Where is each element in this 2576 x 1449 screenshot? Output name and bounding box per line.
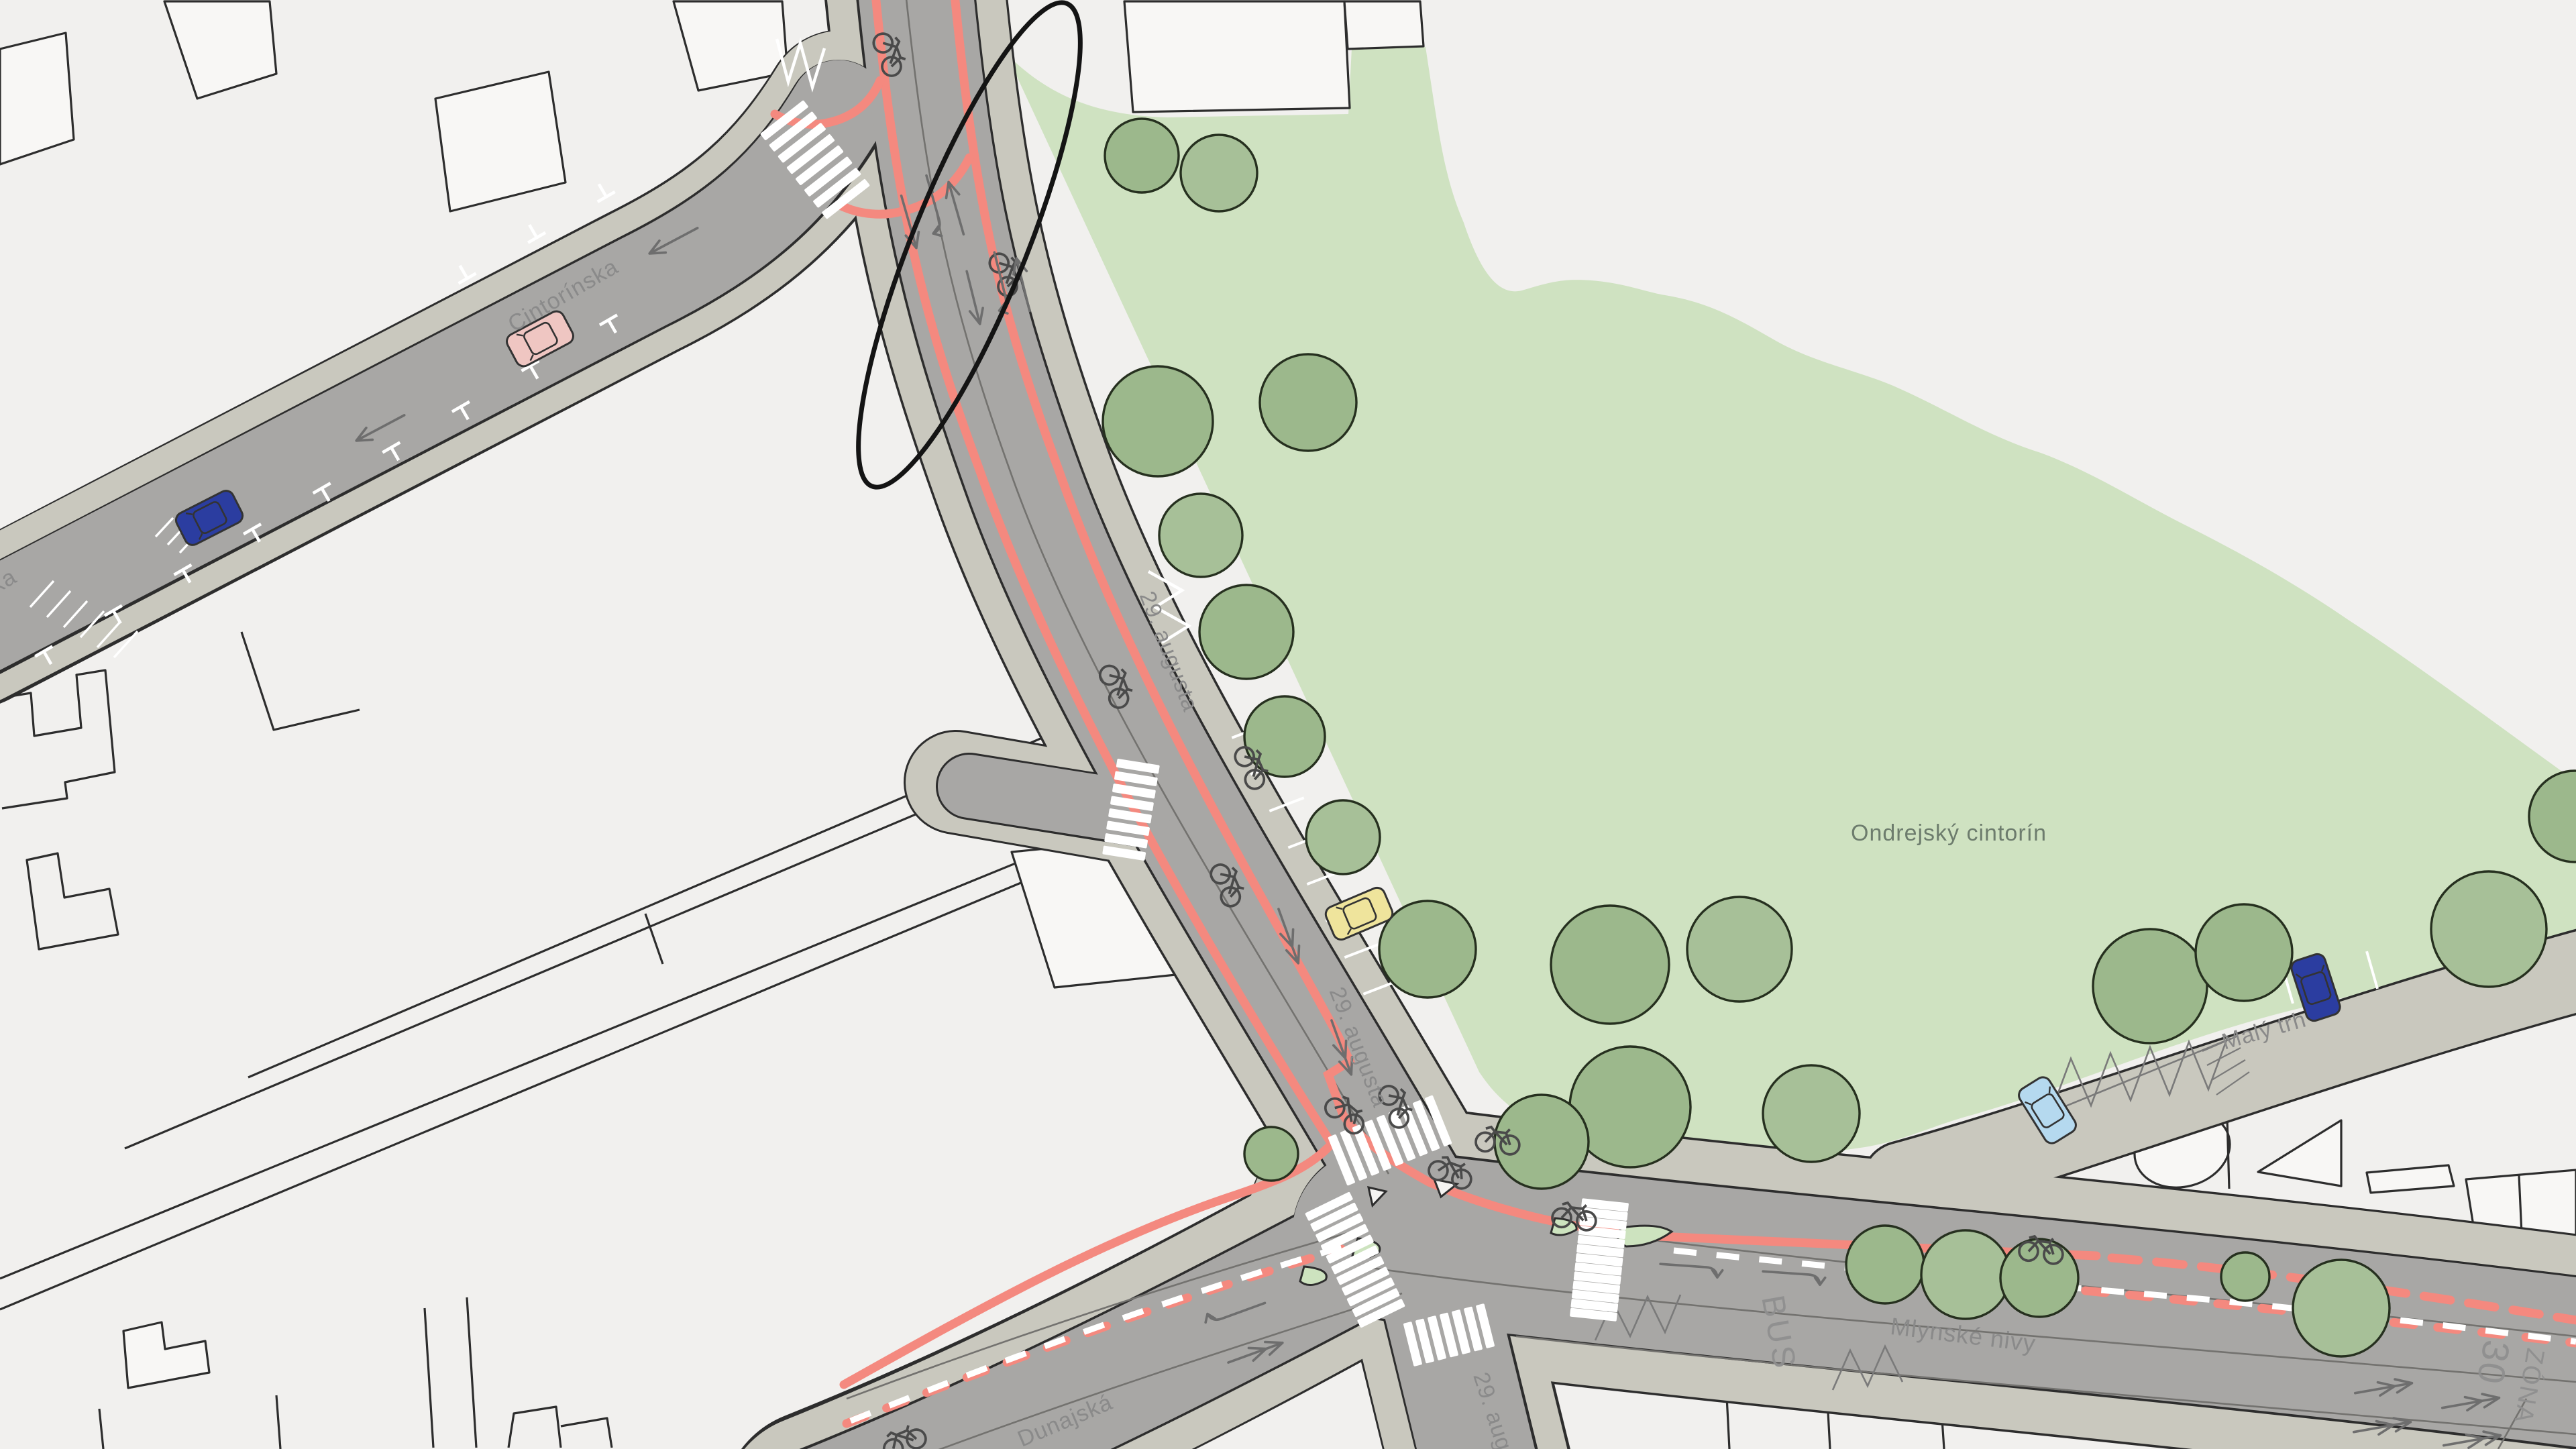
site-plan-svg: CintorínskaCintorínska29. augusta29. aug… — [0, 0, 2576, 1449]
tree — [2221, 1252, 2269, 1301]
tree — [1181, 135, 1257, 211]
tree — [2000, 1239, 2078, 1317]
tree — [1763, 1065, 1860, 1162]
tree — [2293, 1260, 2390, 1356]
tree — [2093, 929, 2207, 1043]
tree — [1687, 897, 1792, 1002]
building-top-notch — [1124, 1, 1350, 112]
tree — [1103, 366, 1213, 476]
tree — [1551, 906, 1669, 1024]
tree — [1921, 1230, 2010, 1319]
label-ondrejsky-cintorin: Ondrejský cintorín — [1851, 820, 2047, 846]
building-top-notch-step — [1344, 1, 1424, 49]
tree — [1105, 119, 1179, 193]
tree — [1306, 800, 1380, 874]
tree — [1244, 1127, 1298, 1181]
tree — [2196, 904, 2292, 1001]
tree — [1379, 901, 1476, 998]
tree — [1159, 494, 1242, 577]
tree — [2431, 871, 2546, 987]
tree — [1260, 354, 1356, 451]
marking-30: 30 — [2469, 1337, 2518, 1388]
tree — [1199, 585, 1293, 679]
tree — [1846, 1226, 1924, 1303]
site-plan-map: CintorínskaCintorínska29. augusta29. aug… — [0, 0, 2576, 1449]
